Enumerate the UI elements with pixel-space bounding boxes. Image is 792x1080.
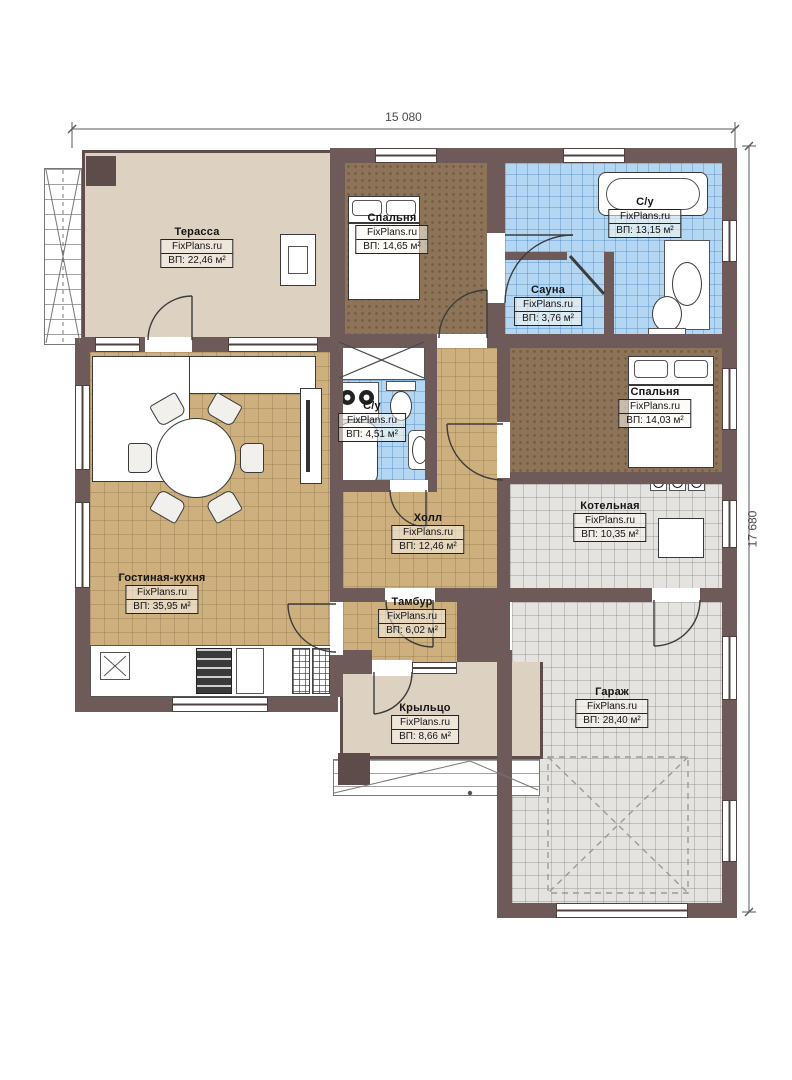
label-terrace: Терасса FixPlans.ru ВП: 22,46 м² (160, 226, 233, 268)
room-area: ВП: 14,65 м² (356, 240, 427, 253)
window (75, 385, 90, 470)
watermark: FixPlans.ru (126, 586, 197, 600)
door-opening (652, 588, 700, 602)
label-garage: Гараж FixPlans.ru ВП: 28,40 м² (575, 686, 648, 728)
window (75, 502, 90, 588)
watermark: FixPlans.ru (515, 298, 581, 312)
column (86, 156, 116, 186)
door-opening (497, 422, 510, 478)
boiler-unit (658, 518, 704, 558)
dimension-height: 17 680 (745, 511, 759, 548)
dimension-width: 15 080 (72, 110, 735, 124)
room-garage (512, 602, 722, 903)
room-area: ВП: 35,95 м² (126, 600, 197, 613)
column (338, 753, 370, 785)
room-name: Тамбур (378, 596, 446, 608)
grill-inner (288, 246, 308, 274)
room-name: С/у (338, 400, 406, 412)
room-area: ВП: 3,76 м² (515, 312, 581, 325)
room-area: ВП: 13,15 м² (609, 224, 680, 237)
wall (330, 148, 345, 348)
window (95, 337, 140, 352)
pillow (674, 360, 708, 378)
wall (505, 252, 567, 260)
label-bedroom-2: Спальня FixPlans.ru ВП: 14,03 м² (618, 386, 691, 428)
room-name: Холл (391, 512, 464, 524)
freezer (312, 648, 330, 694)
watermark: FixPlans.ru (576, 700, 647, 714)
window (722, 368, 737, 430)
wall (330, 334, 722, 348)
room-name: Крыльцо (391, 702, 459, 714)
dining-set (156, 418, 236, 498)
window (722, 500, 737, 548)
tv (306, 400, 310, 472)
wall (505, 472, 722, 484)
window (722, 220, 737, 262)
door-opening (145, 337, 192, 352)
label-boiler: Котельная FixPlans.ru ВП: 10,35 м² (573, 500, 646, 542)
watermark: FixPlans.ru (339, 414, 405, 428)
dining-chair (128, 443, 152, 473)
wall (604, 252, 614, 345)
oven (236, 648, 264, 694)
window (563, 148, 625, 163)
window (412, 662, 457, 674)
door-opening (437, 334, 487, 348)
room-area: ВП: 14,03 м² (619, 414, 690, 427)
window (722, 800, 737, 862)
wall (497, 588, 737, 602)
watermark: FixPlans.ru (392, 526, 463, 540)
room-area: ВП: 8,66 м² (392, 730, 458, 743)
watermark: FixPlans.ru (392, 716, 458, 730)
door-opening (390, 480, 428, 492)
room-area: ВП: 28,40 м² (576, 714, 647, 727)
label-hall: Холл FixPlans.ru ВП: 12,46 м² (391, 512, 464, 554)
room-area: ВП: 6,02 м² (379, 624, 445, 637)
room-area: ВП: 12,46 м² (392, 540, 463, 553)
room-name: С/у (608, 196, 681, 208)
door-opening (372, 660, 412, 676)
garage-door (556, 903, 688, 918)
room-name: Гостиная-кухня (118, 572, 205, 584)
room-name: Сауна (514, 284, 582, 296)
wall (497, 650, 512, 918)
room-name: Спальня (355, 212, 428, 224)
room-area: ВП: 4,51 м² (339, 428, 405, 441)
watermark: FixPlans.ru (574, 514, 645, 528)
wall (425, 340, 437, 492)
terrace-steps (44, 168, 82, 345)
watermark: FixPlans.ru (161, 240, 232, 254)
window (722, 636, 737, 700)
label-bathroom-2: С/у FixPlans.ru ВП: 4,51 м² (338, 400, 406, 442)
room-name: Гараж (575, 686, 648, 698)
dining-chair (240, 443, 264, 473)
label-bathroom-1: С/у FixPlans.ru ВП: 13,15 м² (608, 196, 681, 238)
pillow (634, 360, 668, 378)
watermark: FixPlans.ru (356, 226, 427, 240)
door-opening (487, 233, 505, 303)
label-porch: Крыльцо FixPlans.ru ВП: 8,66 м² (391, 702, 459, 744)
toilet-bowl (652, 296, 682, 332)
room-area: ВП: 10,35 м² (574, 528, 645, 541)
room-name: Терасса (160, 226, 233, 238)
stove (196, 648, 232, 694)
window (172, 697, 268, 712)
label-living-kitchen: Гостиная-кухня FixPlans.ru ВП: 35,95 м² (118, 572, 205, 614)
door-opening (330, 602, 343, 655)
label-bedroom-1: Спальня FixPlans.ru ВП: 14,65 м² (355, 212, 428, 254)
toilet-tank (386, 381, 416, 391)
fridge (292, 648, 310, 694)
label-sauna: Сауна FixPlans.ru ВП: 3,76 м² (514, 284, 582, 326)
kitchen-sink (100, 652, 130, 680)
floor-plan: 15 080 17 680 Терасса FixPlans.ru ВП: 22… (0, 0, 792, 1080)
watermark: FixPlans.ru (609, 210, 680, 224)
room-name: Спальня (618, 386, 691, 398)
room-name: Котельная (573, 500, 646, 512)
window (228, 337, 318, 352)
window (375, 148, 437, 163)
room-area: ВП: 22,46 м² (161, 254, 232, 267)
watermark: FixPlans.ru (379, 610, 445, 624)
label-vestibule: Тамбур FixPlans.ru ВП: 6,02 м² (378, 596, 446, 638)
wall (457, 592, 510, 662)
watermark: FixPlans.ru (619, 400, 690, 414)
tv-cabinet (300, 388, 322, 484)
dining-table (156, 418, 236, 498)
